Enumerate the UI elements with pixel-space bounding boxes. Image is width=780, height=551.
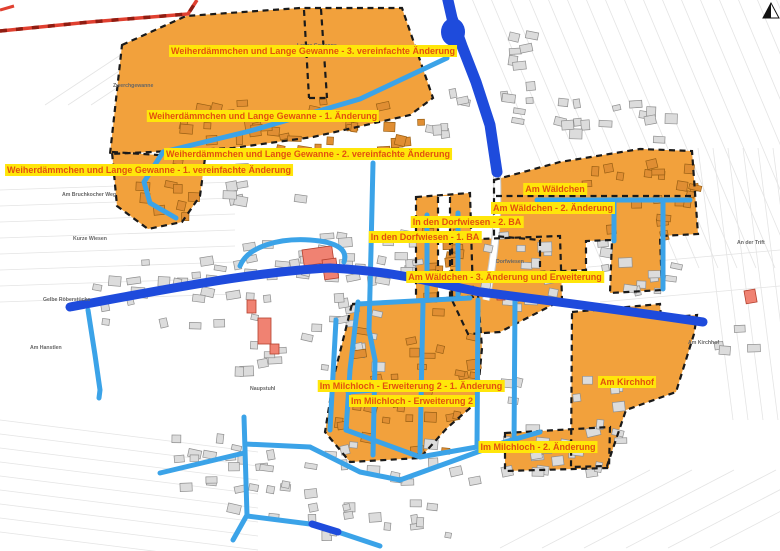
building [353, 349, 367, 359]
building [445, 532, 452, 538]
building [424, 412, 436, 422]
building [192, 272, 201, 279]
building [349, 442, 357, 449]
building [214, 265, 227, 272]
building [108, 276, 121, 287]
plan-label[interactable]: Im Milchloch - Erweiterung 2 - 1. Änderu… [318, 380, 505, 392]
building [251, 314, 259, 321]
building [263, 295, 271, 303]
building [573, 99, 581, 109]
street-minor [477, 300, 478, 447]
building [327, 137, 334, 145]
building [200, 256, 214, 266]
public-building [270, 344, 279, 354]
map-canvas[interactable]: Lange GewanneZwerchgewanneAm Bruchkocher… [0, 0, 780, 551]
building [599, 120, 612, 127]
building [558, 98, 568, 107]
building [246, 293, 254, 300]
building [369, 512, 382, 522]
plan-label[interactable]: Am Wäldchen [523, 183, 587, 195]
building [747, 344, 760, 352]
building [172, 435, 181, 443]
street-minor [420, 303, 423, 452]
building [320, 233, 334, 240]
building [174, 455, 184, 463]
building [266, 449, 275, 460]
building [665, 114, 677, 124]
plan-label[interactable]: In den Dorfwiesen - 2. BA [411, 216, 524, 228]
building [173, 184, 182, 193]
building [644, 115, 657, 125]
building [441, 124, 448, 131]
building [676, 181, 688, 192]
building [483, 244, 493, 253]
building [603, 163, 613, 173]
building [340, 445, 350, 456]
building [294, 194, 307, 203]
field-label: Am Bruchkocher Weg [62, 192, 116, 198]
street-minor [88, 310, 100, 398]
building [410, 348, 419, 357]
building [548, 288, 558, 297]
building [573, 394, 581, 402]
building [308, 503, 318, 512]
building [508, 32, 520, 42]
building [410, 500, 421, 507]
building [525, 31, 538, 40]
building [229, 462, 240, 470]
building [509, 48, 521, 55]
north-arrow-icon [763, 3, 779, 18]
building [384, 122, 396, 132]
street-minor [373, 360, 375, 455]
building [319, 99, 327, 105]
building [190, 455, 199, 462]
building [343, 504, 351, 511]
building [734, 325, 745, 332]
building [416, 517, 423, 527]
building [305, 463, 318, 470]
building [581, 120, 590, 131]
street-minor [338, 532, 380, 546]
field-label: Am Kirchhof [688, 340, 719, 346]
building [433, 309, 445, 316]
field-label: Naupstuhl [250, 386, 276, 392]
building [334, 293, 344, 302]
building [517, 245, 525, 251]
building [250, 341, 258, 349]
field-label: Am Hanstlen [30, 345, 62, 351]
building [646, 159, 658, 170]
building [176, 200, 186, 211]
plan-label[interactable]: Weiherdämmchen und Lange Gewanne - 1. ve… [5, 164, 293, 176]
public-building [247, 300, 256, 313]
building [249, 484, 259, 492]
plan-label[interactable]: Am Wäldchen - 2. Änderung [491, 202, 615, 214]
building [142, 260, 150, 266]
building [652, 169, 665, 175]
building [384, 523, 391, 531]
building [237, 100, 248, 107]
building [469, 476, 482, 486]
building [619, 258, 633, 268]
building [719, 346, 731, 355]
building [616, 172, 624, 180]
building [188, 192, 200, 201]
plan-label[interactable]: Weiherdämmchen und Lange Gewanne - 1. Än… [147, 110, 379, 122]
building [531, 258, 539, 268]
building [301, 333, 313, 342]
building [570, 129, 583, 139]
field-label: Kurze Wiesen [73, 236, 107, 242]
building [266, 485, 275, 493]
plan-label[interactable]: Am Wäldchen - 3. Änderung und Erweiterun… [406, 271, 604, 283]
street-minor [514, 300, 515, 447]
building [304, 488, 317, 498]
public-building [258, 318, 271, 344]
building [418, 119, 425, 125]
building [180, 483, 192, 492]
building [180, 124, 193, 134]
building [427, 503, 438, 511]
road-major [312, 524, 338, 532]
building [321, 364, 328, 370]
building [236, 181, 248, 189]
building [612, 401, 625, 412]
building [526, 98, 533, 104]
plan-label[interactable]: Im Milchloch - 2. Änderung [478, 441, 597, 453]
field-label: Dorfwiesen [496, 259, 524, 265]
building [449, 88, 457, 98]
street-minor [233, 417, 247, 540]
building [653, 136, 665, 143]
building [257, 358, 268, 368]
building [519, 43, 532, 53]
building [102, 318, 110, 325]
building [189, 322, 201, 329]
building [644, 169, 652, 177]
building [449, 466, 462, 477]
building [502, 93, 516, 103]
building [395, 252, 408, 259]
building [526, 81, 536, 90]
building [665, 275, 677, 282]
building [394, 134, 406, 146]
field-label: Gelbe Röberstücke [43, 297, 90, 303]
plan-label[interactable]: In den Dorfwiesen - 1. BA [369, 231, 482, 243]
building [591, 166, 599, 176]
building [260, 464, 274, 472]
plan-label[interactable]: Weiherdämmchen und Lange Gewanne - 3. ve… [169, 45, 457, 57]
building [92, 284, 102, 291]
building [513, 108, 525, 115]
building [670, 263, 682, 270]
plan-label[interactable]: Im Milchloch - Erweiterung 2 [349, 395, 475, 407]
plan-label[interactable]: Am Kirchhof [598, 376, 656, 388]
building [206, 477, 217, 484]
building [281, 481, 290, 489]
building [127, 277, 141, 285]
building [312, 324, 322, 332]
building [583, 376, 593, 384]
building [227, 503, 242, 515]
building [226, 290, 241, 300]
building [614, 438, 626, 444]
building [235, 367, 244, 377]
building [561, 120, 574, 130]
building [629, 100, 642, 108]
building [159, 318, 168, 328]
building [406, 415, 413, 422]
building [214, 319, 225, 327]
building [343, 511, 353, 519]
building [391, 374, 398, 380]
building [231, 444, 242, 451]
building [433, 125, 442, 136]
building [192, 294, 205, 303]
plan-label[interactable]: Weiherdämmchen und Lange Gewanne - 2. ve… [164, 148, 452, 160]
municipal-boundary-line [0, 6, 14, 10]
building [552, 456, 564, 466]
field-label: Zwerchgewanne [113, 83, 153, 89]
building [513, 61, 527, 70]
building [382, 417, 390, 424]
building [648, 271, 660, 278]
building [436, 345, 445, 354]
building [216, 434, 224, 444]
field-label: An der Trift [737, 240, 765, 246]
building [377, 256, 386, 265]
building [612, 104, 621, 111]
building [226, 181, 238, 192]
public-building [744, 289, 757, 304]
street-minor [245, 444, 310, 447]
road-junction [441, 18, 465, 46]
zoning-map: Lange GewanneZwerchgewanneAm Bruchkocher… [0, 0, 780, 551]
building [204, 122, 211, 129]
building [223, 191, 237, 200]
